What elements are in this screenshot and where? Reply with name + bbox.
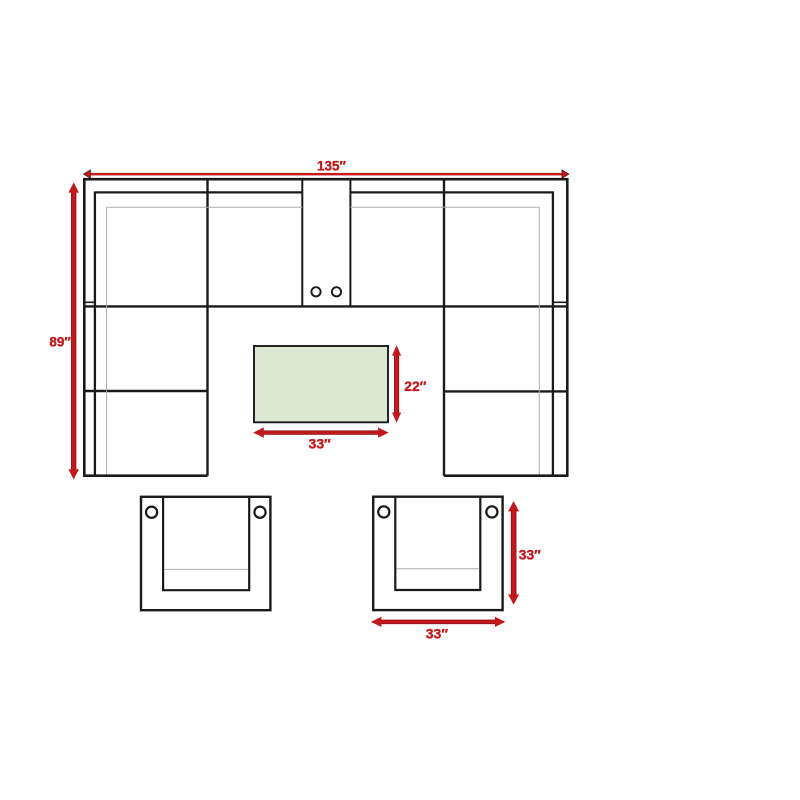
svg-text:135″: 135″: [317, 159, 347, 174]
svg-text:22″: 22″: [404, 378, 427, 394]
svg-text:89″: 89″: [49, 335, 71, 350]
svg-text:33″: 33″: [519, 547, 542, 563]
svg-text:33″: 33″: [426, 626, 449, 642]
svg-text:33″: 33″: [309, 436, 332, 452]
